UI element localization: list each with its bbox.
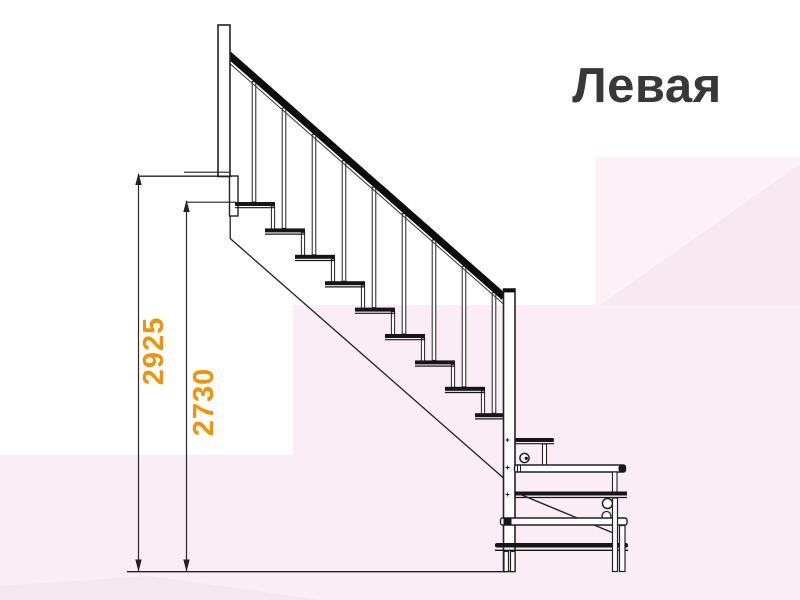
baluster bbox=[312, 134, 316, 255]
baluster bbox=[372, 187, 376, 308]
left-foot-back bbox=[511, 552, 516, 572]
bottom-newel-post bbox=[504, 289, 516, 572]
dimension-label-2730: 2730 bbox=[188, 368, 220, 437]
baluster bbox=[462, 266, 466, 387]
baluster bbox=[402, 214, 406, 335]
riser bbox=[271, 206, 274, 229]
base-support-stub-upper bbox=[543, 444, 547, 466]
baluster bbox=[252, 82, 256, 203]
riser bbox=[451, 364, 454, 387]
riser bbox=[361, 285, 364, 308]
bolt-dot-1 bbox=[525, 457, 528, 460]
riser bbox=[331, 259, 334, 282]
post-lower-extension bbox=[230, 176, 239, 216]
riser bbox=[301, 232, 304, 255]
right-leg-back bbox=[620, 526, 626, 572]
baluster bbox=[342, 161, 346, 282]
base-rail-middle bbox=[515, 465, 626, 472]
left-foot-front bbox=[504, 552, 509, 572]
base-support-stub-right bbox=[613, 472, 618, 492]
baluster bbox=[282, 108, 286, 228]
riser bbox=[421, 338, 424, 361]
staircase-drawing-page: 2925 2730 Левая bbox=[0, 0, 800, 600]
bolt-circle-2 bbox=[603, 499, 613, 509]
right-leg-front bbox=[613, 498, 618, 572]
riser bbox=[481, 391, 484, 414]
page-title: Левая bbox=[572, 59, 721, 113]
baluster bbox=[492, 293, 496, 414]
base-rail-lower bbox=[501, 518, 628, 526]
baluster bbox=[432, 240, 436, 361]
dimension-label-2925: 2925 bbox=[138, 317, 170, 386]
riser bbox=[391, 312, 394, 335]
staircase-diagram: 2925 2730 Левая bbox=[0, 0, 800, 600]
